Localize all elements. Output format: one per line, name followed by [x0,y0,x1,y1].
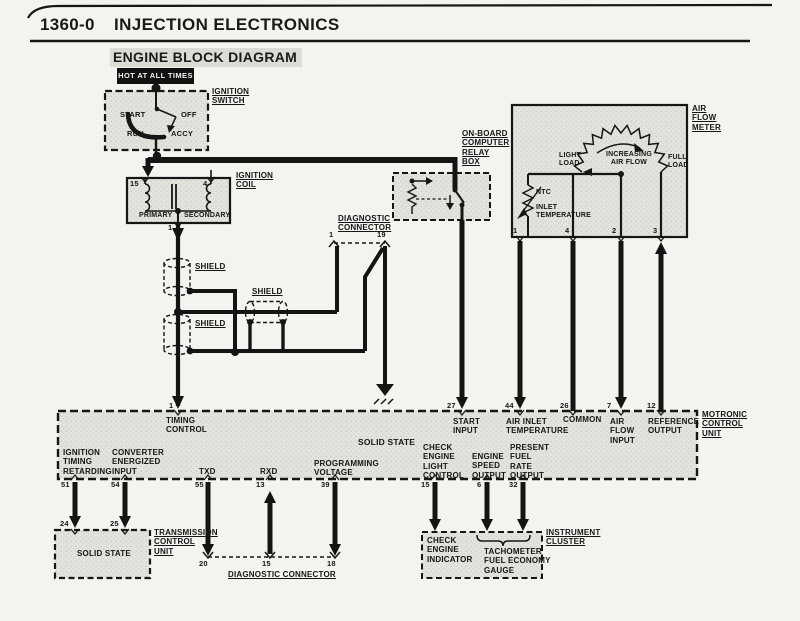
diagram-title: ENGINE BLOCK DIAGRAM [110,48,302,67]
shield-label-3: SHIELD [195,319,226,328]
tachometer-gauge-label: TACHOMETER FUEL ECONOMY GAUGE [484,547,551,575]
timing-signal-wire [172,224,184,409]
motronic-label: MOTRONIC CONTROL UNIT [702,410,747,438]
motronic-pin-13: 13 [256,481,265,490]
motronic-pin-12: 12 [647,402,656,411]
motronic-rxd-label: RXD [260,467,278,476]
motronic-pin-27: 27 [447,402,456,411]
motronic-common-label: COMMON [563,415,602,424]
coil-primary-label: PRIMARY [139,212,172,220]
afm-pin-2: 2 [612,227,616,236]
coil-pin-15: 15 [130,180,139,189]
diagnostic-connector-top [329,241,390,247]
transmission-label: TRANSMISSION CONTROL UNIT [154,528,218,556]
afm-pin-3: 3 [653,227,657,236]
afm-to-motronic-wires [514,241,667,411]
motronic-pin-39: 39 [321,481,330,490]
motronic-fuel-rate-label: PRESENT FUEL RATE OUTPUT [510,443,549,481]
shield-symbols [164,259,288,355]
motronic-air-inlet-label: AIR INLET TEMPERATURE [506,417,569,436]
afm-light-load-label: LIGHT LOAD [559,152,581,169]
diag-bottom-pin-20: 20 [199,560,208,569]
power-source-tag: HOT AT ALL TIMES [117,68,194,84]
diag-top-pin-1: 1 [329,231,333,240]
motronic-pin-51: 51 [61,481,70,490]
instrument-cluster-label: INSTRUMENT CLUSTER [546,528,600,547]
switch-pos-run: RUN [127,130,144,139]
coil-pin-1: 1 [168,224,172,233]
start-input-wire [456,220,468,409]
shield-label-2: SHIELD [252,287,283,296]
motronic-pin-54: 54 [111,481,120,490]
motronic-solid-state: SOLID STATE [358,437,415,447]
diagram-graphics [0,0,800,621]
diag-bottom-pin-18: 18 [327,560,336,569]
afm-ntc-label: NTC [536,189,551,197]
transmission-pin-25: 25 [110,520,119,529]
motronic-pin-55: 55 [195,481,204,490]
motronic-pin-32: 32 [509,481,518,490]
motronic-pin-1: 1 [169,402,173,411]
diag-bottom-label: DIAGNOSTIC CONNECTOR [228,570,336,579]
coil-secondary-label: SECONDARY [184,212,230,220]
wiring-diagram-page: 1360-0 INJECTION ELECTRONICS ENGINE BLOC… [0,0,800,621]
motronic-pin-44: 44 [505,402,514,411]
transmission-pin-24: 24 [60,520,69,529]
motronic-converter-label: CONVERTER ENERGIZED INPUT [112,448,164,476]
motronic-prog-voltage-label: PROGRAMMING VOLTAGE [314,459,379,478]
diag-bottom-pin-15: 15 [262,560,271,569]
motronic-timing-control-label: TIMING CONTROL [166,416,207,435]
ignition-switch-label: IGNITION SWITCH [212,87,249,106]
page-title: INJECTION ELECTRONICS [114,15,340,35]
motronic-pin-7: 7 [607,402,611,411]
afm-pin-1: 1 [513,227,517,236]
motronic-reference-output-label: REFERENCE OUTPUT [648,417,699,436]
shield-label-1: SHIELD [195,262,226,271]
motronic-pin-6: 6 [477,481,481,490]
ignition-coil-label: IGNITION COIL [236,171,273,190]
motronic-txd-label: TXD [199,467,216,476]
coil-pin-4: 4 [203,180,207,189]
transmission-solid-state: SOLID STATE [77,549,131,558]
motronic-air-flow-input-label: AIR FLOW INPUT [610,417,635,445]
switch-pos-start: START [120,111,145,120]
motronic-start-input-label: START INPUT [453,417,480,436]
motronic-pin-26: 26 [560,402,569,411]
switch-pos-accy: ACCY [171,130,193,139]
motronic-check-engine-label: CHECK ENGINE LIGHT CONTROL [423,443,464,481]
relay-box-label: ON-BOARD COMPUTER RELAY BOX [462,129,509,167]
afm-pin-4: 4 [565,227,569,236]
air-flow-meter-label: AIR FLOW METER [692,104,721,132]
check-engine-indicator-label: CHECK ENGINE INDICATOR [427,536,473,564]
afm-full-load-label: FULL LOAD [668,154,689,171]
relay-box [393,173,490,220]
switch-pos-off: OFF [181,111,197,120]
motronic-engine-speed-label: ENGINE SPEED OUTPUT [472,452,506,480]
afm-increasing-label: INCREASING AIR FLOW [597,151,661,168]
section-number: 1360-0 [40,15,95,35]
motronic-pin-15: 15 [421,481,430,490]
ground-icon [374,384,394,404]
motronic-ign-timing-label: IGNITION TIMING RETARDING [63,448,112,476]
afm-inlet-temp-label: INLET TEMPERATURE [536,204,591,221]
diag-top-pin-19: 19 [377,231,386,240]
